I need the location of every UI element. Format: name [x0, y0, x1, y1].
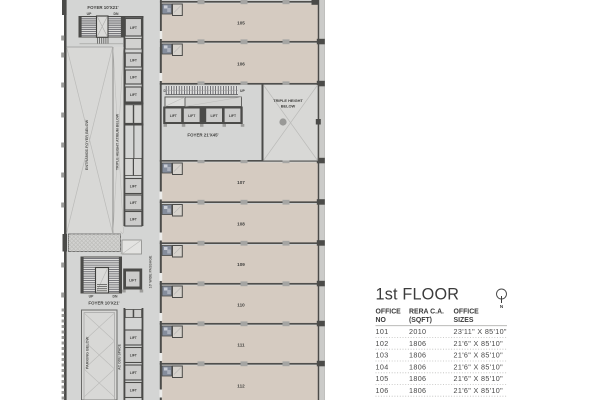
svg-text:102: 102 — [376, 339, 389, 348]
svg-text:2010: 2010 — [409, 327, 426, 336]
svg-text:BELOW: BELOW — [281, 104, 296, 109]
svg-text:23'11" X 85'10": 23'11" X 85'10" — [454, 327, 507, 336]
svg-text:104: 104 — [376, 362, 389, 371]
svg-text:105: 105 — [237, 20, 245, 25]
svg-text:111: 111 — [237, 342, 245, 347]
svg-text:110: 110 — [237, 302, 245, 307]
svg-text:RERA C.A.: RERA C.A. — [409, 309, 444, 316]
svg-text:LIFT: LIFT — [130, 59, 138, 63]
svg-text:112: 112 — [237, 384, 245, 389]
svg-text:AC ODU SPACE: AC ODU SPACE — [118, 343, 122, 369]
svg-text:LIFT: LIFT — [130, 26, 138, 30]
svg-text:1st FLOOR: 1st FLOOR — [376, 286, 460, 304]
svg-text:SIZES: SIZES — [454, 317, 474, 324]
svg-text:21'6" X 85'10": 21'6" X 85'10" — [454, 362, 504, 371]
svg-text:LIFT: LIFT — [129, 278, 137, 282]
svg-text:21'6" X 85'10": 21'6" X 85'10" — [454, 374, 504, 383]
svg-text:TRIPLE HEIGHT ATRIUM BELOW: TRIPLE HEIGHT ATRIUM BELOW — [115, 113, 119, 170]
svg-text:105: 105 — [376, 374, 389, 383]
svg-text:FOYER 10'X21': FOYER 10'X21' — [88, 301, 119, 306]
svg-text:1806: 1806 — [409, 362, 426, 371]
svg-text:UP: UP — [240, 89, 245, 93]
svg-text:LIFT: LIFT — [130, 93, 138, 97]
svg-text:101: 101 — [376, 327, 389, 336]
svg-text:LIFT: LIFT — [188, 114, 196, 118]
svg-text:LIFT: LIFT — [229, 114, 237, 118]
svg-text:1806: 1806 — [409, 386, 426, 395]
svg-text:1806: 1806 — [409, 351, 426, 360]
svg-text:LIFT: LIFT — [130, 336, 138, 340]
svg-text:21'6" X 85'10": 21'6" X 85'10" — [454, 351, 504, 360]
svg-text:(SQFT): (SQFT) — [409, 317, 432, 324]
svg-text:107: 107 — [237, 180, 245, 185]
svg-text:UP: UP — [89, 295, 94, 299]
svg-text:DN: DN — [113, 295, 118, 299]
svg-text:LIFT: LIFT — [130, 371, 138, 375]
svg-text:TRIPLE HEIGHT: TRIPLE HEIGHT — [273, 98, 303, 103]
svg-text:DN: DN — [114, 12, 119, 16]
svg-text:LIFT: LIFT — [130, 354, 138, 358]
svg-text:1806: 1806 — [409, 374, 426, 383]
svg-text:OFFICE: OFFICE — [376, 309, 402, 316]
svg-text:106: 106 — [237, 61, 245, 66]
svg-text:108: 108 — [237, 221, 245, 226]
svg-text:21'6" X 85'10": 21'6" X 85'10" — [454, 339, 504, 348]
svg-text:106: 106 — [376, 386, 389, 395]
svg-text:OFFICE: OFFICE — [454, 309, 480, 316]
svg-text:LIFT: LIFT — [130, 185, 138, 189]
svg-text:FOYER 21'X45': FOYER 21'X45' — [187, 133, 218, 138]
svg-text:109: 109 — [237, 262, 245, 267]
svg-text:LIFT: LIFT — [170, 114, 178, 118]
svg-text:ENTRANCE FOYER BELOW: ENTRANCE FOYER BELOW — [85, 119, 89, 170]
svg-text:LIFT: LIFT — [211, 114, 219, 118]
svg-text:LIFT: LIFT — [130, 76, 138, 80]
svg-text:LIFT: LIFT — [130, 201, 138, 205]
svg-text:10' WIDE PASSAGE: 10' WIDE PASSAGE — [149, 255, 153, 288]
svg-text:LIFT: LIFT — [130, 389, 138, 393]
svg-text:21'6" X 85'10": 21'6" X 85'10" — [454, 386, 504, 395]
svg-text:N: N — [500, 304, 504, 309]
svg-text:FOYER 10'X21': FOYER 10'X21' — [87, 5, 118, 10]
svg-text:NO: NO — [376, 317, 387, 324]
svg-text:103: 103 — [376, 351, 389, 360]
svg-text:PARKING BELOW: PARKING BELOW — [86, 336, 90, 369]
svg-text:LIFT: LIFT — [130, 217, 138, 221]
svg-text:UP: UP — [87, 12, 92, 16]
svg-text:1806: 1806 — [409, 339, 426, 348]
